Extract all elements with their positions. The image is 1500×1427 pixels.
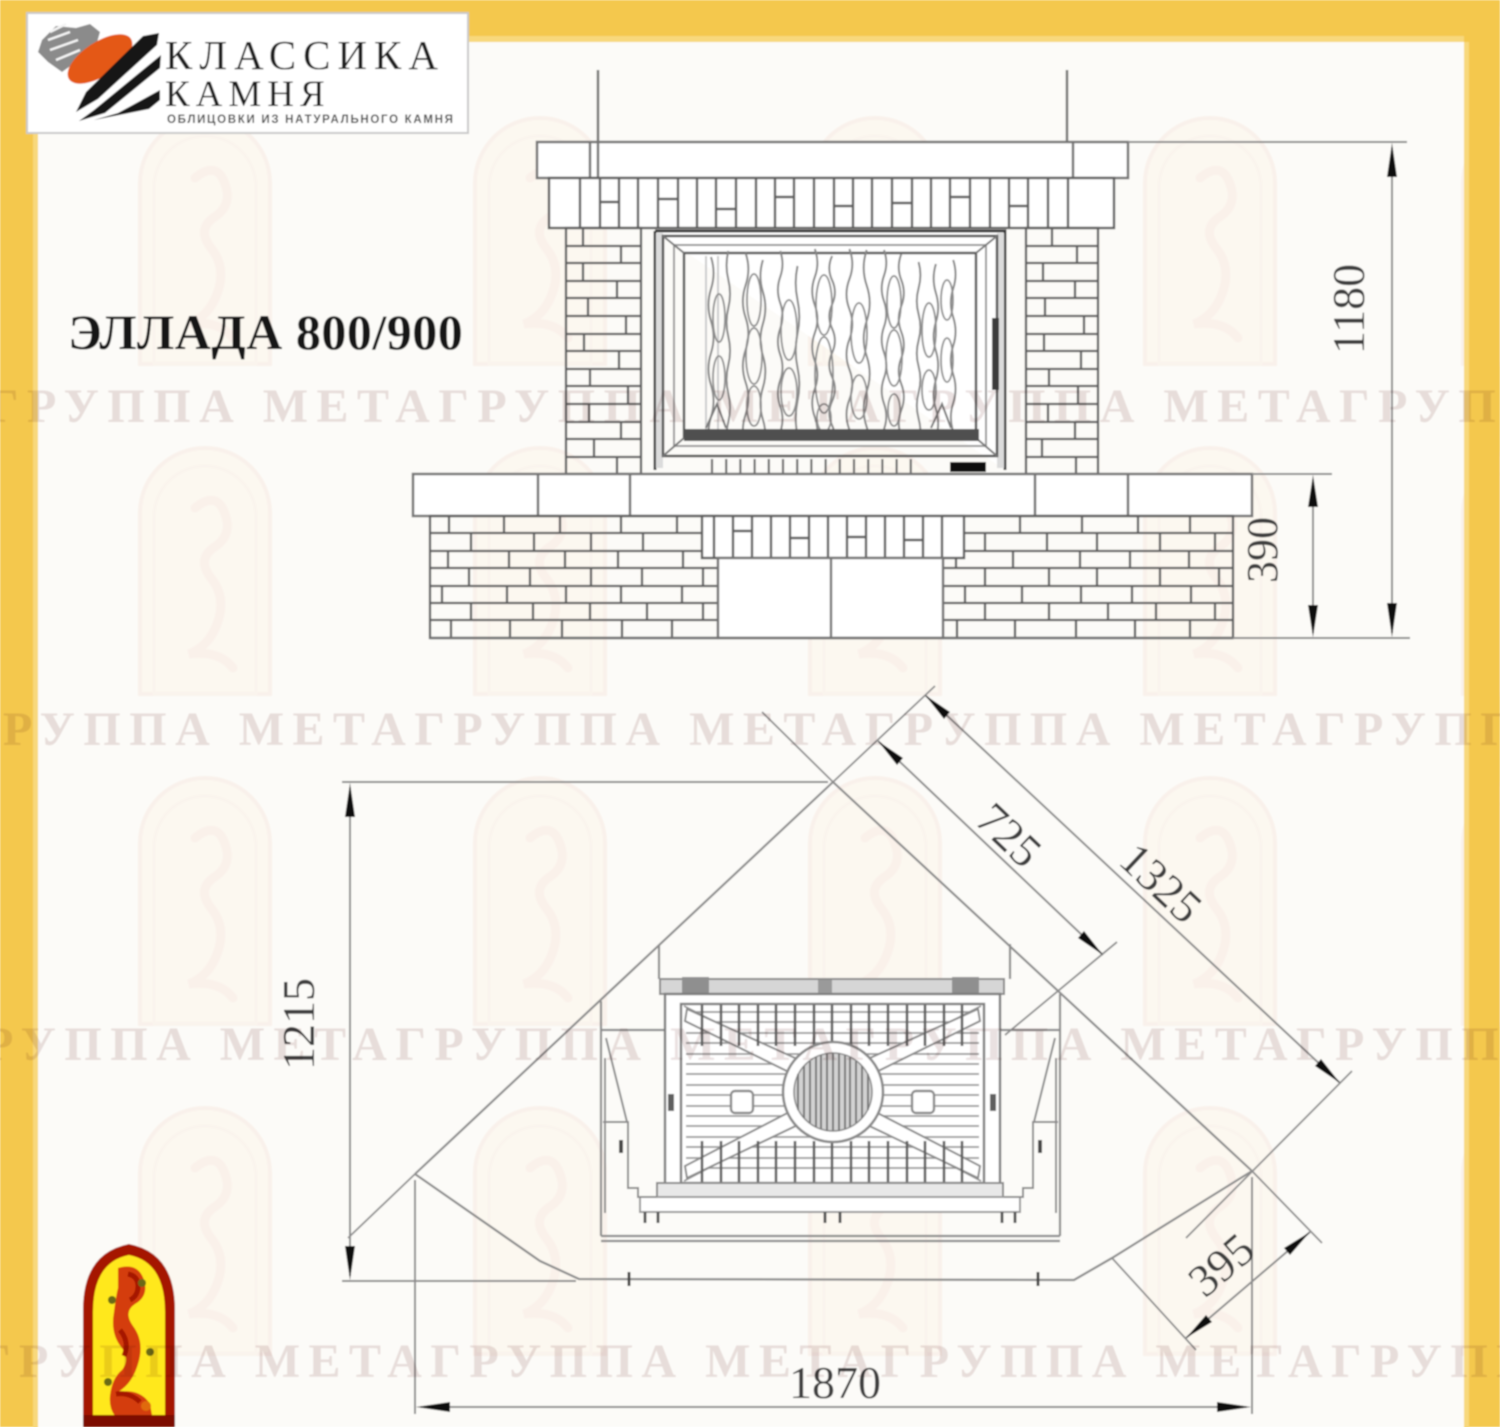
svg-text:ЭЛЛАДА 800/900: ЭЛЛАДА 800/900	[68, 304, 463, 360]
svg-text:ГРУППА МЕТАГРУППА МЕТАГРУППА М: ГРУППА МЕТАГРУППА МЕТАГРУППА МЕТАГРУППА …	[0, 380, 1500, 433]
svg-text:390: 390	[1238, 517, 1287, 583]
svg-text:КЛАССИКА: КЛАССИКА	[165, 32, 445, 78]
svg-text:КАМНЯ: КАМНЯ	[165, 74, 331, 115]
svg-text:ОБЛИЦОВКИ ИЗ НАТУРАЛЬНОГО КАМН: ОБЛИЦОВКИ ИЗ НАТУРАЛЬНОГО КАМНЯ	[167, 114, 455, 126]
svg-text:1180: 1180	[1323, 264, 1374, 354]
svg-text:ГРУППА МЕТАГРУППА МЕТАГРУППА М: ГРУППА МЕТАГРУППА МЕТАГРУППА МЕТАГРУППА …	[0, 703, 1500, 756]
svg-text:ГРУППА МЕТАГРУППА МЕТАГРУППА М: ГРУППА МЕТАГРУППА МЕТАГРУППА МЕТАГРУППА …	[0, 1335, 1500, 1388]
svg-text:ГРУППА МЕТАГРУППА МЕТАГРУППА М: ГРУППА МЕТАГРУППА МЕТАГРУППА МЕТАГРУППА …	[0, 1018, 1500, 1071]
